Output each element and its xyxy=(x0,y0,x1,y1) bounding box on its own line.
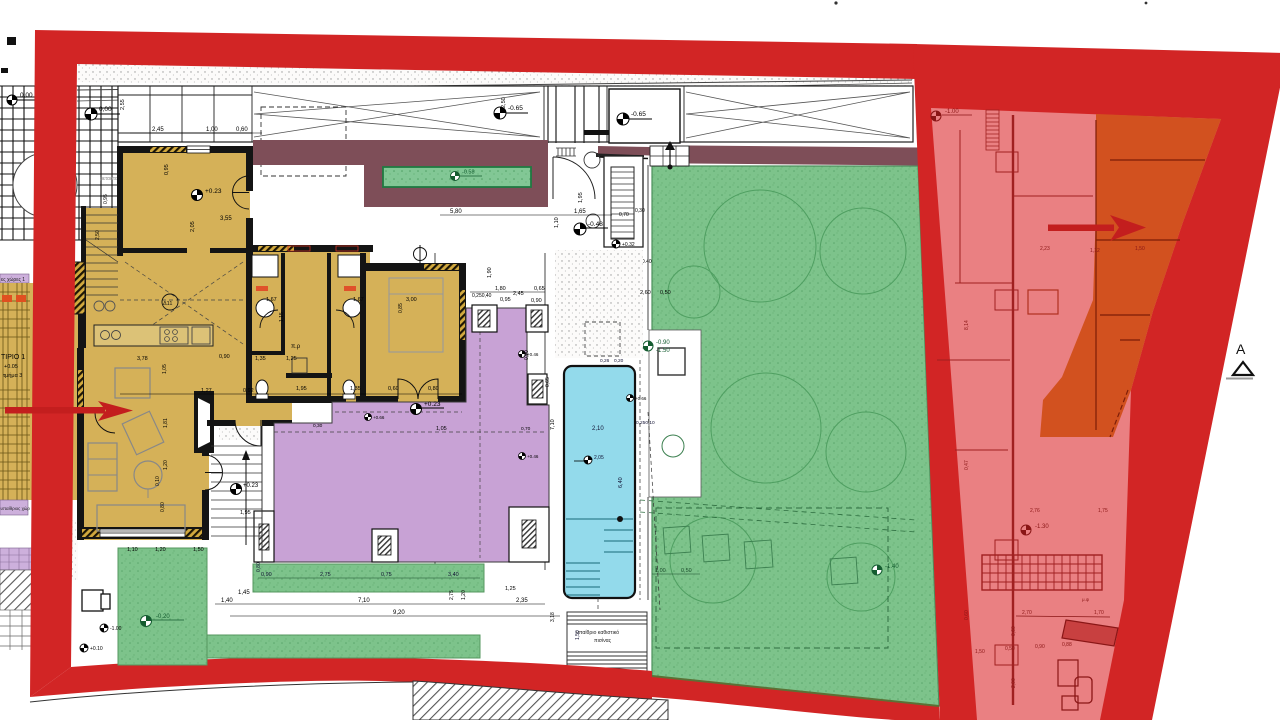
svg-text:5,80: 5,80 xyxy=(450,209,462,215)
svg-text:9,20: 9,20 xyxy=(393,610,405,616)
svg-text:1,15: 1,15 xyxy=(279,312,285,322)
svg-text:3,78: 3,78 xyxy=(137,356,148,362)
svg-text:0,90: 0,90 xyxy=(1035,644,1045,650)
svg-text:1,80: 1,80 xyxy=(495,286,506,292)
svg-text:ΤΙΡΙΟ 1: ΤΙΡΙΟ 1 xyxy=(1,354,25,361)
svg-text:0,26: 0,26 xyxy=(600,358,610,364)
svg-text:1,50: 1,50 xyxy=(975,649,985,655)
svg-text:1,35: 1,35 xyxy=(350,386,361,392)
svg-text:6,40: 6,40 xyxy=(618,477,624,488)
svg-text:2,05: 2,05 xyxy=(190,221,196,232)
svg-text:0,50: 0,50 xyxy=(1005,646,1015,652)
svg-text:1,95: 1,95 xyxy=(296,386,307,392)
svg-text:-0.58: -0.58 xyxy=(462,170,475,176)
svg-text:1,67: 1,67 xyxy=(266,297,277,303)
svg-text:-0.65: -0.65 xyxy=(508,105,523,112)
svg-text:0,65: 0,65 xyxy=(534,286,545,292)
svg-text:0,10: 0,10 xyxy=(155,476,161,486)
svg-text:2,45: 2,45 xyxy=(152,127,164,133)
svg-text:1,81: 1,81 xyxy=(163,418,169,428)
svg-text:1,95: 1,95 xyxy=(240,510,251,516)
svg-text:0,88: 0,88 xyxy=(1062,642,1072,648)
svg-text:-1.00: -1.00 xyxy=(945,109,959,115)
svg-text:-1.50: -1.50 xyxy=(656,348,670,354)
svg-text:0,47: 0,47 xyxy=(964,460,970,470)
svg-text:2,00: 2,00 xyxy=(1011,678,1017,688)
svg-text:1,25: 1,25 xyxy=(286,356,297,362)
svg-text:0,90: 0,90 xyxy=(261,572,272,578)
svg-text:1,50: 1,50 xyxy=(193,547,204,553)
svg-text:-0.20: -0.20 xyxy=(156,614,170,620)
svg-text:3,40: 3,40 xyxy=(448,572,459,578)
svg-text:0,85: 0,85 xyxy=(398,303,404,313)
svg-text:+0.66: +0.66 xyxy=(635,396,647,401)
svg-text:2,60: 2,60 xyxy=(640,290,651,296)
svg-text:1,00: 1,00 xyxy=(206,127,218,133)
svg-text:3,00: 3,00 xyxy=(406,297,417,303)
svg-text:+0.46: +0.46 xyxy=(527,454,539,459)
svg-text:0,30: 0,30 xyxy=(313,423,323,429)
svg-text:0,95: 0,95 xyxy=(500,297,511,303)
svg-text:0,80: 0,80 xyxy=(160,502,166,512)
svg-text:υπαίθριο καθιστικό: υπαίθριο καθιστικό xyxy=(576,629,619,636)
svg-text:Δ11: Δ11 xyxy=(163,301,172,307)
svg-text:1,10: 1,10 xyxy=(554,217,560,228)
svg-text:0,50: 0,50 xyxy=(660,290,671,296)
svg-text:0,95: 0,95 xyxy=(103,194,109,204)
svg-text:0,00: 0,00 xyxy=(20,92,33,99)
svg-text:2,23: 2,23 xyxy=(1040,246,1050,252)
svg-text:τμήμα 3: τμήμα 3 xyxy=(3,372,22,379)
svg-text:1,65: 1,65 xyxy=(574,209,586,215)
svg-text:0,80: 0,80 xyxy=(256,562,262,572)
svg-text:2,55: 2,55 xyxy=(120,99,126,110)
svg-text:2,10: 2,10 xyxy=(592,426,604,432)
svg-text:0,75: 0,75 xyxy=(381,572,392,578)
svg-text:2,05: 2,05 xyxy=(594,455,604,461)
svg-text:1,70: 1,70 xyxy=(1094,610,1104,616)
svg-text:0,95: 0,95 xyxy=(164,164,170,175)
svg-text:+0.05: +0.05 xyxy=(4,364,18,370)
svg-text:0,65: 0,65 xyxy=(545,377,551,387)
svg-text:-1.30: -1.30 xyxy=(1035,524,1049,530)
svg-text:1,20: 1,20 xyxy=(163,460,169,470)
svg-text:πισίνας: πισίνας xyxy=(594,638,612,644)
svg-text:+0.23: +0.23 xyxy=(424,401,441,408)
svg-text:+0.10: +0.10 xyxy=(90,646,103,652)
svg-text:1,12: 1,12 xyxy=(1090,248,1100,254)
svg-text:1,35: 1,35 xyxy=(255,356,266,362)
svg-text:π.ρ: π.ρ xyxy=(291,344,301,350)
svg-text:2,75: 2,75 xyxy=(320,572,331,578)
svg-text:-0.90: -0.90 xyxy=(656,340,670,346)
svg-text:-1.00: -1.00 xyxy=(110,626,122,632)
svg-text:1,50: 1,50 xyxy=(1135,246,1145,252)
svg-text:0,60: 0,60 xyxy=(236,127,248,133)
svg-text:-1.40: -1.40 xyxy=(885,564,899,570)
svg-text:1,40: 1,40 xyxy=(221,598,233,604)
svg-text:1,00: 1,00 xyxy=(655,568,666,574)
svg-text:0,90: 0,90 xyxy=(531,298,542,304)
svg-text:2,35: 2,35 xyxy=(516,598,528,604)
svg-text:ες χώρες 1: ες χώρες 1 xyxy=(1,276,25,283)
svg-text:1,95: 1,95 xyxy=(578,192,584,203)
svg-text:3,55: 3,55 xyxy=(220,216,232,222)
svg-text:0,70: 0,70 xyxy=(521,426,531,432)
svg-text:+0.66: +0.66 xyxy=(373,415,385,420)
svg-text:1,90: 1,90 xyxy=(487,267,493,278)
svg-text:1,25: 1,25 xyxy=(505,586,516,592)
svg-text:+0.23: +0.23 xyxy=(243,483,259,489)
svg-text:1,75: 1,75 xyxy=(1098,508,1108,514)
svg-text:0,70: 0,70 xyxy=(619,212,629,218)
svg-text:1,50: 1,50 xyxy=(575,630,581,640)
svg-text:1,27: 1,27 xyxy=(201,388,212,394)
svg-text:3,18: 3,18 xyxy=(550,612,556,622)
svg-text:+0.32: +0.32 xyxy=(622,242,635,248)
svg-text:1,20: 1,20 xyxy=(155,547,166,553)
svg-text:1,10: 1,10 xyxy=(127,547,138,553)
svg-text:+0.23: +0.23 xyxy=(205,188,222,195)
svg-text:1,05: 1,05 xyxy=(436,426,447,432)
svg-text:2,75: 2,75 xyxy=(449,590,455,600)
svg-text:0,60: 0,60 xyxy=(388,386,399,392)
svg-text:2,76: 2,76 xyxy=(1030,508,1040,514)
svg-text:2,50: 2,50 xyxy=(95,230,101,240)
svg-text:A: A xyxy=(1236,341,1246,357)
svg-text:1,45: 1,45 xyxy=(238,590,250,596)
svg-text:-0.48: -0.48 xyxy=(588,221,603,228)
svg-text:0,92: 0,92 xyxy=(243,388,254,394)
svg-text:0,80: 0,80 xyxy=(428,386,439,392)
svg-text:0,50: 0,50 xyxy=(681,568,692,574)
svg-text:7,10: 7,10 xyxy=(358,598,370,604)
svg-text:2,50: 2,50 xyxy=(501,97,507,108)
svg-text:0,250,10: 0,250,10 xyxy=(636,420,655,426)
svg-text:0,60: 0,60 xyxy=(964,610,970,620)
svg-text:μ.ψ: μ.ψ xyxy=(1082,597,1089,602)
svg-text:0,30: 0,30 xyxy=(635,208,645,214)
svg-text:-0.65: -0.65 xyxy=(631,111,646,118)
svg-text:0,250,40: 0,250,40 xyxy=(472,293,492,299)
svg-text:0,60: 0,60 xyxy=(1011,626,1017,636)
svg-text:1,67: 1,67 xyxy=(353,297,364,303)
svg-text:1,05: 1,05 xyxy=(162,364,168,374)
svg-text:υπαίθριος χώρ: υπαίθριος χώρ xyxy=(1,505,31,511)
svg-text:0,20: 0,20 xyxy=(614,358,624,364)
svg-text:1,20: 1,20 xyxy=(461,590,467,600)
svg-text:0,90: 0,90 xyxy=(524,350,530,360)
svg-text:7,10: 7,10 xyxy=(550,419,556,430)
svg-text:0,90: 0,90 xyxy=(219,354,230,360)
svg-text:2,70: 2,70 xyxy=(1022,610,1032,616)
svg-text:8,14: 8,14 xyxy=(964,320,970,330)
svg-text:0,00: 0,00 xyxy=(99,106,112,113)
